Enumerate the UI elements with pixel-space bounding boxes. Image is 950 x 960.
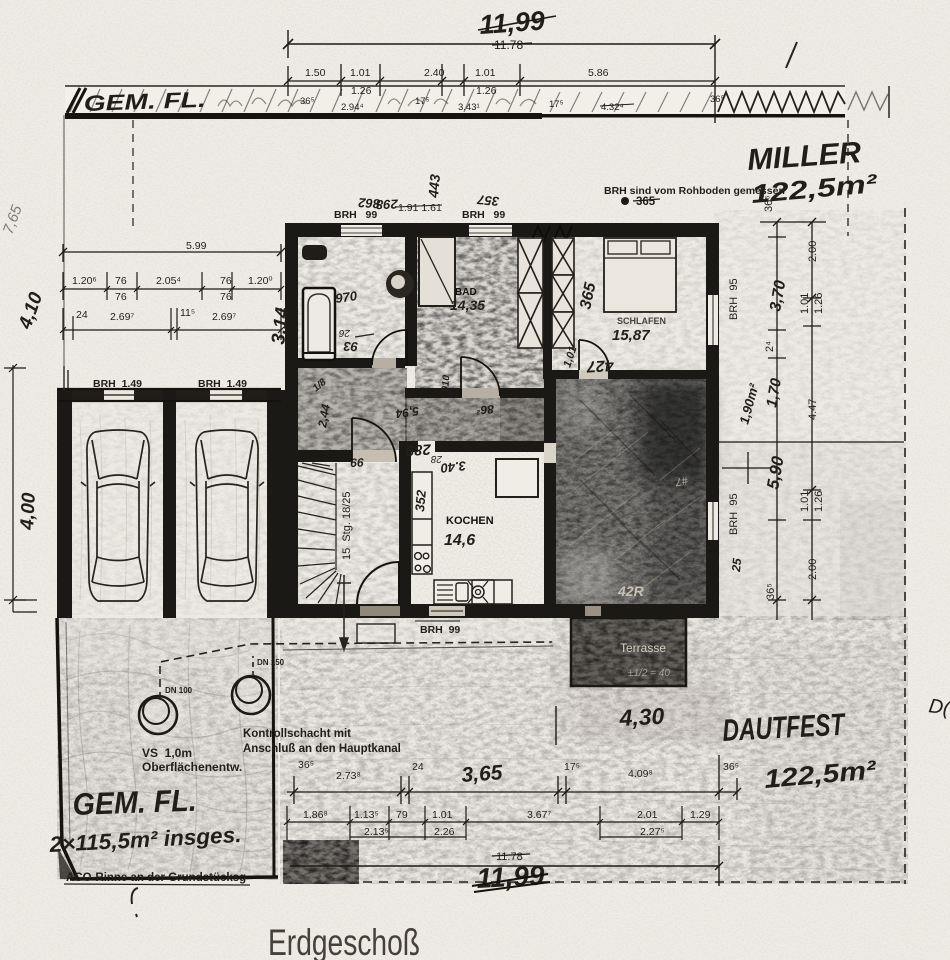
svg-text:17⁵: 17⁵	[415, 96, 430, 107]
svg-text:1.01: 1.01	[799, 293, 811, 314]
svg-text:3,65: 3,65	[461, 761, 504, 787]
svg-text:2.40: 2.40	[424, 67, 445, 79]
svg-text:4.47: 4.47	[807, 399, 819, 420]
svg-text:365: 365	[636, 196, 656, 208]
svg-text:BRH 99: BRH 99	[420, 624, 460, 636]
svg-text:1.26: 1.26	[476, 85, 497, 97]
svg-text:DAUTFEST: DAUTFEST	[722, 707, 848, 748]
svg-text:ACO-Rinne an der Grundstücksg: ACO-Rinne an der Grundstücksg	[66, 872, 246, 884]
svg-text:4.09⁸: 4.09⁸	[628, 768, 653, 780]
svg-text:1.26: 1.26	[813, 491, 825, 512]
svg-text:1.20⁶: 1.20⁶	[72, 275, 97, 287]
svg-text:3.43¹: 3.43¹	[458, 102, 480, 113]
svg-text:352: 352	[412, 489, 429, 513]
svg-text:GEM. FL.: GEM. FL.	[83, 87, 206, 116]
svg-text:4,30: 4,30	[618, 703, 665, 731]
svg-text:17⁵: 17⁵	[564, 761, 580, 773]
svg-text:36⁵: 36⁵	[298, 759, 314, 771]
svg-text:5.99: 5.99	[186, 240, 207, 252]
svg-text:11⁵: 11⁵	[180, 307, 195, 319]
svg-text:79: 79	[396, 809, 408, 821]
svg-text:970: 970	[334, 288, 358, 306]
svg-text:2.69⁷: 2.69⁷	[110, 311, 134, 323]
svg-text:2.94⁴: 2.94⁴	[341, 102, 364, 113]
svg-text:D(: D(	[927, 695, 950, 720]
svg-text:Anschluß an den Hauptkanal: Anschluß an den Hauptkanal	[243, 743, 401, 755]
svg-text:99: 99	[350, 455, 364, 469]
svg-text:1.13⁵: 1.13⁵	[354, 809, 379, 821]
svg-text:SCHLAFEN: SCHLAFEN	[617, 316, 666, 326]
svg-text:36⁵: 36⁵	[723, 761, 739, 773]
svg-text:2⁴: 2⁴	[764, 341, 776, 352]
svg-text:Terrasse: Terrasse	[620, 641, 666, 655]
svg-text:BRH 1.49: BRH 1.49	[93, 378, 142, 390]
svg-text:76: 76	[220, 291, 232, 303]
svg-text:2.69⁷: 2.69⁷	[212, 311, 236, 323]
svg-text:26: 26	[338, 327, 351, 338]
svg-text:17⁵: 17⁵	[549, 99, 564, 110]
svg-text:2.26: 2.26	[434, 826, 455, 838]
svg-text:2.00: 2.00	[807, 559, 819, 580]
svg-text:BRH 99: BRH 99	[462, 209, 505, 221]
svg-text:36⁵: 36⁵	[763, 195, 775, 212]
svg-text:2.27⁵: 2.27⁵	[640, 826, 665, 838]
svg-text:2.00: 2.00	[807, 241, 819, 262]
svg-text:1.91 1.61: 1.91 1.61	[398, 202, 442, 214]
svg-text:298: 298	[375, 197, 399, 213]
svg-text:42R: 42R	[617, 583, 645, 599]
svg-text:2.13⁵: 2.13⁵	[364, 826, 389, 838]
svg-text:4.32⁴: 4.32⁴	[601, 102, 624, 113]
svg-text:±1/2 = 40: ±1/2 = 40	[628, 668, 670, 679]
svg-text:11,99: 11,99	[478, 5, 545, 40]
svg-text:76: 76	[115, 275, 127, 287]
svg-text:1.01: 1.01	[350, 67, 371, 79]
svg-text:1.20⁰: 1.20⁰	[248, 275, 273, 287]
svg-text:910: 910	[440, 374, 452, 392]
svg-text:1.29: 1.29	[690, 809, 711, 821]
svg-text:3.67⁷: 3.67⁷	[527, 809, 551, 821]
svg-text:14,6: 14,6	[444, 532, 475, 549]
svg-text:2.73⁸: 2.73⁸	[336, 770, 361, 782]
svg-text:15,87: 15,87	[612, 327, 650, 344]
svg-text:Kontrollschacht mit: Kontrollschacht mit	[243, 728, 351, 740]
svg-text:2.01: 2.01	[637, 809, 658, 821]
svg-text:Oberflächenentw.: Oberflächenentw.	[142, 760, 242, 774]
svg-text:76: 76	[115, 291, 127, 303]
svg-text:289: 289	[405, 440, 433, 459]
svg-text:357: 357	[476, 192, 500, 209]
svg-text:3.40: 3.40	[439, 458, 466, 476]
svg-text:25: 25	[729, 557, 744, 573]
svg-text:1.01: 1.01	[475, 67, 496, 79]
svg-text:VS 1,0m: VS 1,0m	[142, 746, 192, 760]
svg-text:BRH 95: BRH 95	[728, 493, 740, 535]
svg-text:GEM. FL.: GEM. FL.	[72, 783, 197, 822]
svg-text:427: 427	[585, 356, 615, 374]
svg-text:86²: 86²	[475, 402, 494, 418]
svg-text:1.01: 1.01	[432, 809, 453, 821]
svg-text:24: 24	[412, 761, 424, 773]
svg-text:KOCHEN: KOCHEN	[446, 515, 494, 527]
svg-text:36⁵: 36⁵	[710, 94, 725, 105]
svg-text:1.01: 1.01	[799, 491, 811, 512]
svg-text:1.26: 1.26	[351, 85, 372, 97]
svg-text:36⁵: 36⁵	[765, 583, 777, 600]
svg-text:BRH 1.49: BRH 1.49	[198, 378, 247, 390]
svg-text:443: 443	[425, 173, 443, 199]
svg-text:1.86⁸: 1.86⁸	[303, 809, 328, 821]
svg-text:Erdgeschoß: Erdgeschoß	[268, 922, 420, 960]
svg-text:36⁵: 36⁵	[300, 96, 315, 107]
svg-text:1.50: 1.50	[305, 67, 326, 79]
svg-text:76: 76	[220, 275, 232, 287]
svg-text:93: 93	[343, 339, 359, 355]
svg-text:24: 24	[76, 309, 88, 321]
svg-text:1.26: 1.26	[813, 293, 825, 314]
svg-text:BRH 95: BRH 95	[728, 278, 740, 320]
svg-text:BRH sind vom Rohboden gemessen: BRH sind vom Rohboden gemessen	[604, 185, 785, 197]
svg-text:BRH 99: BRH 99	[334, 209, 377, 221]
svg-text:DN 100: DN 100	[165, 686, 193, 695]
svg-text:15 Stg. 18/25: 15 Stg. 18/25	[341, 492, 353, 561]
svg-text:2.05⁴: 2.05⁴	[156, 275, 181, 287]
svg-text:5.86: 5.86	[588, 67, 609, 79]
svg-text:14,35: 14,35	[450, 297, 485, 313]
svg-text:DN 150: DN 150	[257, 658, 285, 667]
svg-text:4,00: 4,00	[17, 492, 40, 531]
